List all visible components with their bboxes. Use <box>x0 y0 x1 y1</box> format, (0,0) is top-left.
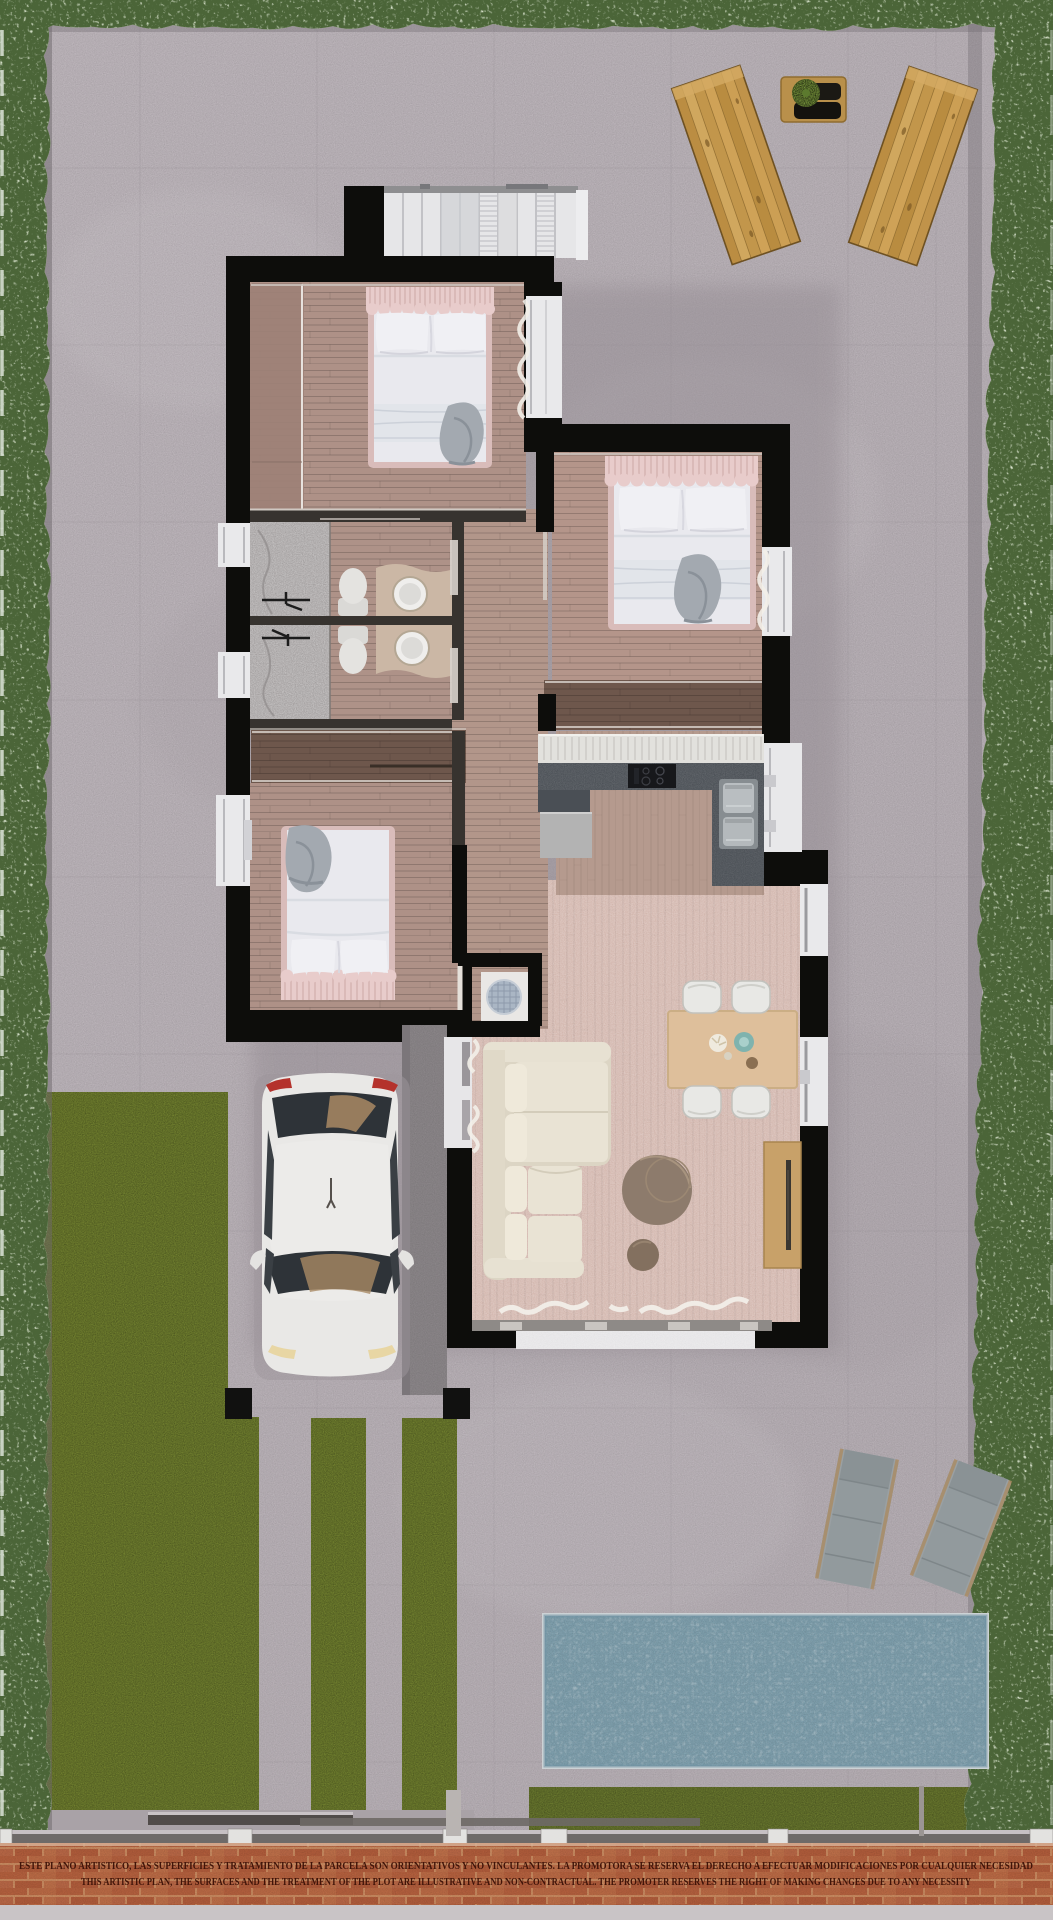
svg-text:THIS ARTISTIC PLAN, THE SURFAC: THIS ARTISTIC PLAN, THE SURFACES AND THE… <box>81 1877 971 1888</box>
svg-text:ESTE PLANO ARTISTICO, LAS SUPE: ESTE PLANO ARTISTICO, LAS SUPERFICIES Y … <box>19 1861 1033 1872</box>
